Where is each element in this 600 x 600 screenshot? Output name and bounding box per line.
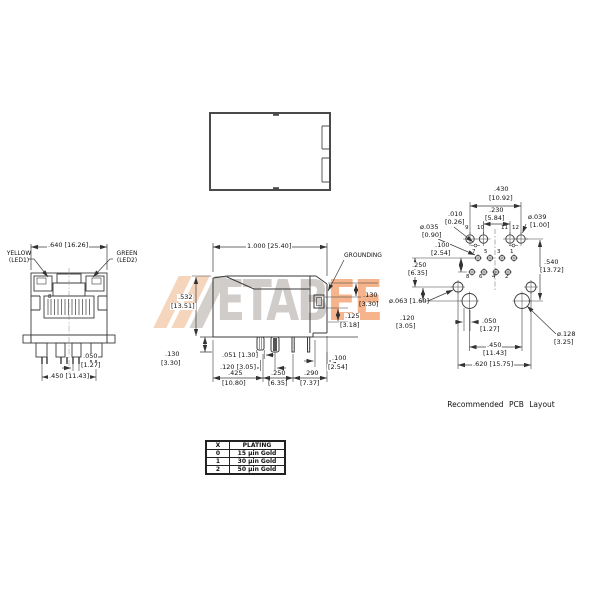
dim-side-tail-in: .125	[344, 313, 360, 320]
pcb-pin-1: 1	[510, 249, 514, 255]
dim-side-c-mm: [10.80]	[222, 380, 246, 387]
dim-pcb-050-mm: [1.27]	[479, 326, 501, 333]
led2-label: GREEN (LED2)	[112, 251, 142, 265]
dim-pcb-dia063: ø.063 [1.60]	[389, 298, 429, 305]
dim-pcb-250-mm: [6.35]	[407, 270, 429, 277]
pcb-pin-12: 12	[512, 225, 519, 231]
pcb-pin-9: 9	[465, 225, 469, 231]
dim-pcb-dia035-mm: [0.90]	[421, 232, 443, 239]
dim-pcb-120-mm: [3.05]	[396, 323, 416, 330]
pcb-pin-8: 8	[466, 274, 470, 280]
technical-drawing-page: ETABEE	[0, 0, 600, 600]
pcb-layout-caption: Recommended PCB Layout	[443, 400, 559, 409]
pcb-pin-7: 7	[472, 249, 476, 255]
dim-side-tab-mm: [3.30]	[359, 301, 379, 308]
dim-pcb-540-mm: [13.72]	[539, 267, 565, 274]
dim-front-span: .450 [11.43]	[48, 373, 90, 380]
dim-side-tab-in: .130	[363, 292, 377, 299]
pcb-pin-11: 11	[501, 225, 508, 231]
dim-side-f-mm: [2.54]	[327, 364, 349, 371]
dim-pcb-dia039-mm: [1.00]	[529, 222, 551, 229]
plating-col-plating: PLATING	[230, 441, 286, 450]
pcb-pin-5: 5	[484, 249, 488, 255]
front-view-drawing	[23, 244, 115, 381]
dim-side-tail-mm: [3.18]	[339, 322, 361, 329]
dim-side-standoff-in: .130	[165, 351, 179, 358]
plating-header-row: X PLATING	[206, 441, 285, 450]
grounding-label: GROUNDING	[344, 253, 382, 260]
dim-pcb-010-mm: [0.26]	[444, 219, 466, 226]
grounding-tab	[314, 295, 324, 308]
dim-side-c-in: .425	[228, 370, 242, 377]
dim-side-length: 1.000 [25.40]	[246, 243, 292, 250]
drawing-linework	[0, 0, 600, 600]
dim-front-pitch-in: .050	[82, 353, 98, 360]
table-row: 2 50 μin Gold	[206, 466, 285, 475]
dim-side-d-in: .250	[271, 370, 285, 377]
dim-pcb-230-mm: [5.84]	[484, 215, 506, 222]
dim-side-e-mm: [7.37]	[300, 380, 320, 387]
pcb-pin-2: 2	[505, 274, 509, 280]
plating-col-x: X	[206, 441, 230, 450]
dim-pcb-dia128-mm: [3.25]	[554, 339, 574, 346]
dim-side-d-mm: [6.35]	[268, 380, 288, 387]
top-view-drawing	[210, 113, 330, 190]
dim-pcb-620: .620 [15.75]	[472, 361, 514, 368]
dim-pcb-450-mm: [11.43]	[482, 350, 508, 357]
dim-side-standoff-mm: [3.30]	[161, 360, 181, 367]
dim-side-e-in: .290	[304, 370, 318, 377]
dim-pcb-430-mm: [10.92]	[488, 195, 514, 202]
led1-label: YELLOW (LED1)	[4, 251, 34, 265]
dim-pcb-100-mm: [2.54]	[430, 250, 452, 257]
dim-side-height-mm: [13.51]	[170, 303, 196, 310]
dim-side-peg-width: .051 [1.30]	[221, 352, 259, 359]
table-row: 0 15 μin Gold	[206, 450, 285, 458]
pcb-pin-3: 3	[497, 249, 501, 255]
pcb-pin-6: 6	[479, 274, 483, 280]
plating-table: X PLATING 0 15 μin Gold 1 30 μin Gold 2 …	[205, 440, 286, 475]
dim-pcb-430-in: .430	[493, 186, 509, 193]
pcb-pin-4: 4	[492, 274, 496, 280]
dim-side-height-in: .532	[177, 294, 193, 301]
pcb-pin-10: 10	[477, 225, 484, 231]
dim-front-pitch-mm: [1.27]	[80, 362, 102, 369]
dim-side-f-in: .100	[331, 355, 347, 362]
front-pin8-label: 8	[48, 294, 52, 300]
table-row: 1 30 μin Gold	[206, 458, 285, 466]
dim-front-width: .640 [16.26]	[47, 242, 89, 249]
